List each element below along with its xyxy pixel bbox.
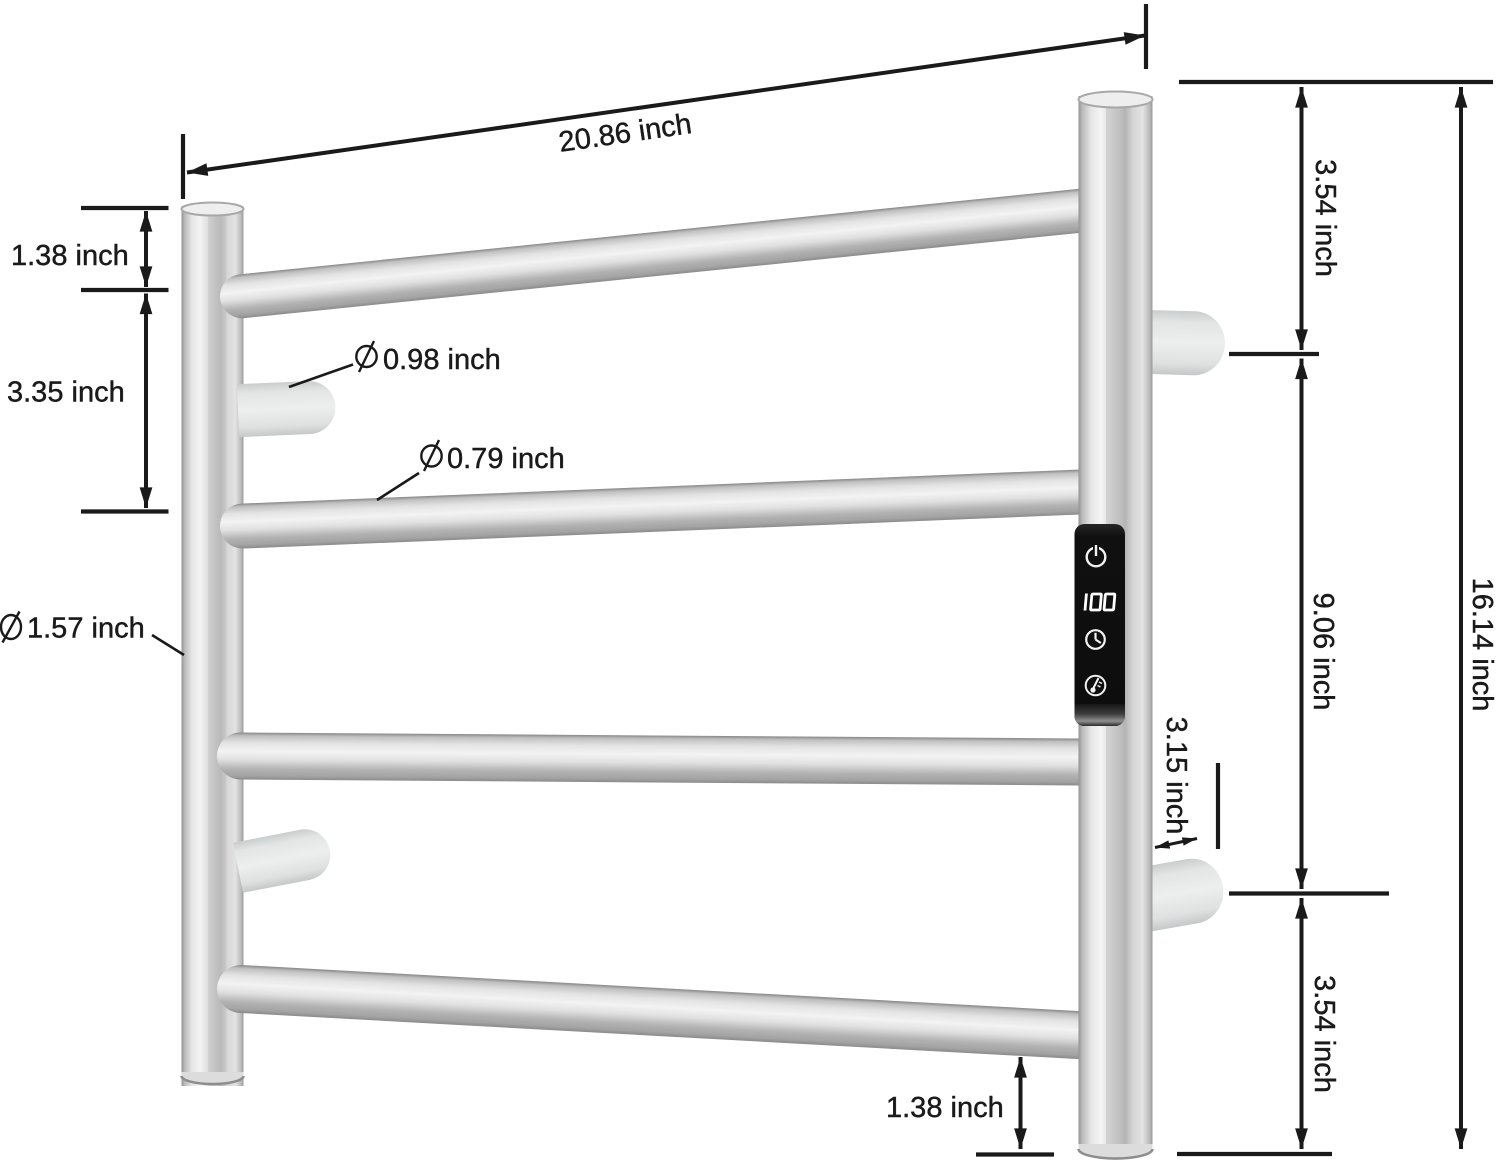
svg-text:16.14 inch: 16.14 inch: [1466, 578, 1498, 712]
svg-text:3.35 inch: 3.35 inch: [7, 377, 125, 409]
svg-text:1.57 inch: 1.57 inch: [27, 613, 145, 645]
svg-text:0.98 inch: 0.98 inch: [383, 344, 501, 376]
svg-text:3.54 inch: 3.54 inch: [1308, 975, 1340, 1093]
svg-text:1.38 inch: 1.38 inch: [886, 1092, 1004, 1124]
svg-text:1.38 inch: 1.38 inch: [11, 240, 129, 272]
svg-text:3.54 inch: 3.54 inch: [1309, 159, 1341, 277]
svg-text:0.79 inch: 0.79 inch: [447, 443, 565, 475]
svg-text:9.06 inch: 9.06 inch: [1307, 593, 1339, 711]
svg-text:3.15 inch: 3.15 inch: [1160, 717, 1192, 835]
